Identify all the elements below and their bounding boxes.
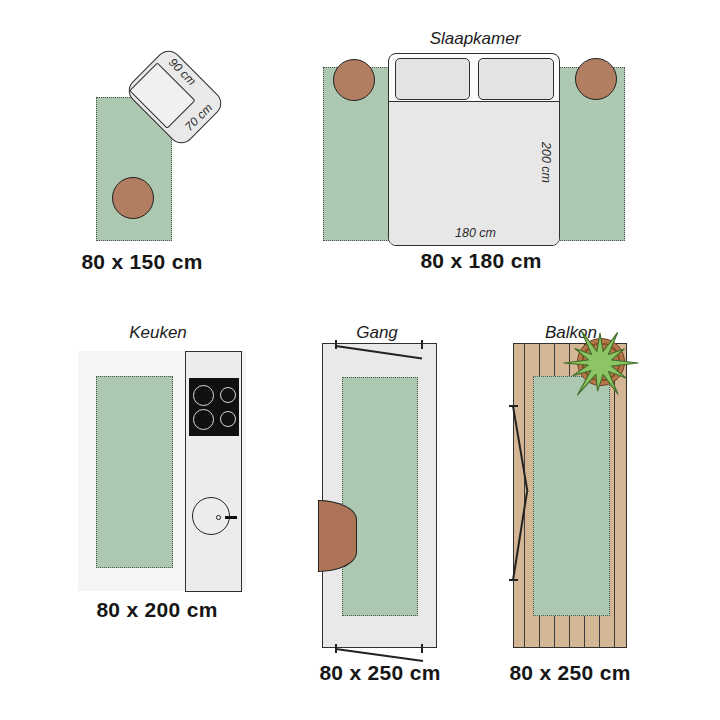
rug-size-guide: 90 cm 70 cm 80 x 150 cm Slaapkamer 200 c…: [0, 0, 720, 720]
rug-balcony-80x250: [533, 376, 610, 616]
balcony-size-label: 80 x 250 cm: [470, 661, 670, 685]
plant-leaves-icon: [560, 323, 640, 403]
balcony-scene: Balkon 80 x 250 cm: [0, 0, 720, 720]
